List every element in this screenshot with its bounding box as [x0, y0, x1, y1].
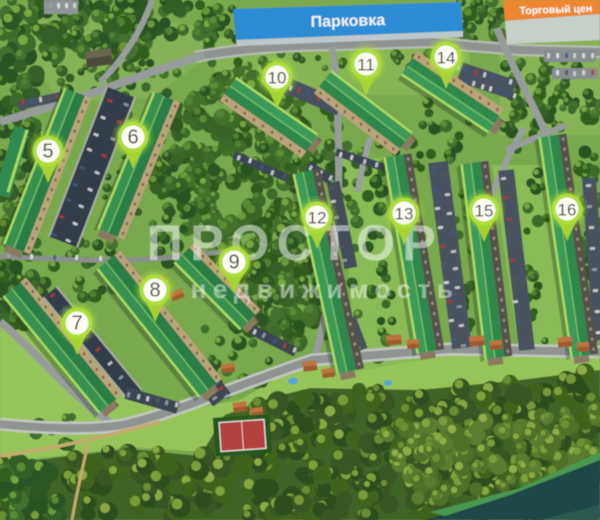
- svg-text:8: 8: [149, 280, 160, 302]
- svg-text:11: 11: [357, 56, 375, 75]
- svg-text:9: 9: [228, 252, 239, 274]
- svg-text:15: 15: [475, 202, 494, 221]
- svg-text:12: 12: [308, 209, 327, 228]
- svg-text:13: 13: [395, 205, 414, 224]
- svg-text:Торговый цен: Торговый цен: [519, 3, 592, 18]
- svg-text:16: 16: [558, 201, 577, 220]
- svg-text:10: 10: [268, 69, 287, 88]
- svg-text:6: 6: [127, 127, 138, 149]
- svg-text:Парковка: Парковка: [310, 12, 385, 31]
- svg-text:7: 7: [71, 313, 82, 335]
- svg-text:5: 5: [42, 141, 53, 163]
- svg-text:14: 14: [437, 49, 456, 68]
